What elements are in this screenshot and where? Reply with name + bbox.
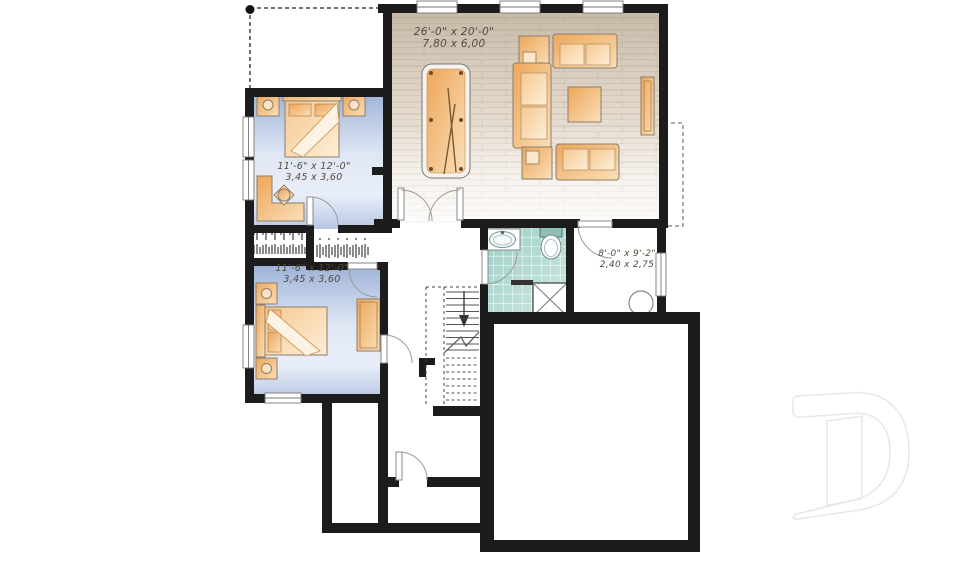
armchair-top <box>519 36 549 66</box>
door-utility <box>578 221 612 258</box>
toilet <box>540 227 562 259</box>
drummond-d-logo-watermark <box>793 393 909 519</box>
bed-bottom <box>256 305 327 357</box>
dresser <box>357 299 380 351</box>
nightstand-top-right <box>343 94 365 116</box>
nightstand-bottom-upper <box>256 283 277 304</box>
tv-cabinet <box>641 77 654 135</box>
nightstand-top-left <box>257 94 279 116</box>
window-bed1-b <box>243 160 254 200</box>
closet-bottom-hatch <box>316 238 370 258</box>
armchair-bottom <box>522 147 552 179</box>
loveseat-bottom <box>556 144 619 180</box>
door-bedroom-bottom-hall <box>381 335 412 363</box>
coffee-table <box>568 87 601 122</box>
porch-outline-dashed <box>246 5 381 88</box>
window-family-3 <box>583 1 623 13</box>
window-family-1 <box>417 1 457 13</box>
window-bed2-south <box>265 393 301 403</box>
window-utility <box>656 253 666 296</box>
bed-top <box>283 92 341 157</box>
window-bed1-a <box>243 117 254 157</box>
bathroom-vanity-sink <box>485 229 520 250</box>
pool-table <box>422 64 470 178</box>
stairs-down-arrow-icon <box>459 291 469 327</box>
staircase <box>426 287 479 404</box>
window-bed2-left <box>243 325 254 368</box>
sofa-top <box>553 34 617 68</box>
sump-pump <box>629 291 653 315</box>
floor-plan-page: 26'-0" x 20'-0" 7,80 x 6,00 11'-6" x 12'… <box>0 0 960 569</box>
door-basement-room <box>396 452 427 480</box>
window-family-2 <box>500 1 540 13</box>
floor-plan-drawing <box>0 0 960 569</box>
sofa-left <box>513 63 551 148</box>
closet-top-hatch <box>252 230 308 254</box>
nightstand-bottom-lower <box>256 358 277 379</box>
